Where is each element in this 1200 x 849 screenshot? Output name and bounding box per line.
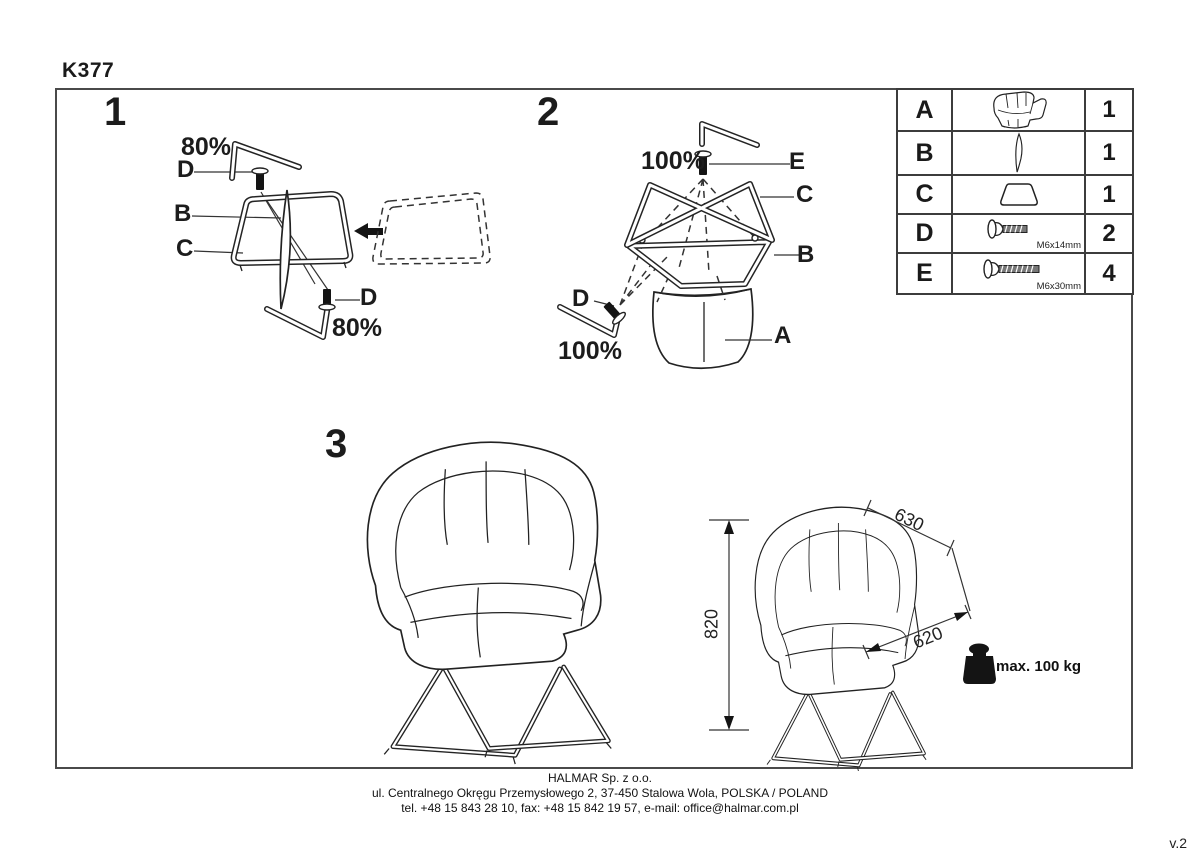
part-qty: 1 <box>1102 181 1115 209</box>
step2-pct-top: 100% <box>641 149 705 174</box>
weight-icon <box>963 644 996 685</box>
version-label: v.2 <box>1149 835 1187 849</box>
step2-label-d: D <box>572 287 589 311</box>
max-load-text: max. 100 kg <box>996 658 1081 675</box>
step2-label-c: C <box>796 183 813 207</box>
dim-height-text: 820 <box>702 609 723 639</box>
step2-label-b: B <box>797 243 814 267</box>
part-row: M6x14mm <box>953 215 1086 254</box>
part-letter: E <box>916 259 933 288</box>
assembly-instruction-sheet: K377 <box>0 0 1200 849</box>
step-1-number: 1 <box>104 92 126 132</box>
step-2-number: 2 <box>537 92 559 132</box>
footer-company: HALMAR Sp. z o.o. <box>0 771 1200 785</box>
frame-icon <box>996 180 1042 210</box>
chair-shell-icon <box>984 90 1054 130</box>
part-letter: D <box>915 219 933 248</box>
part-letter: C <box>915 180 933 209</box>
step1-diagram <box>192 144 490 337</box>
connector-blade-icon <box>1009 132 1029 174</box>
step1-label-d-top: D <box>177 158 194 182</box>
model-title: K377 <box>62 59 114 83</box>
part-qty: 4 <box>1102 260 1115 288</box>
footer-contact: tel. +48 15 843 28 10, fax: +48 15 842 1… <box>0 801 1200 815</box>
step2-label-a: A <box>774 324 791 348</box>
step2-label-e: E <box>789 150 805 174</box>
part-qty: 1 <box>1102 96 1115 124</box>
step1-label-b: B <box>174 202 191 226</box>
part-row <box>953 176 1086 215</box>
footer-address: ul. Centralnego Okręgu Przemysłowego 2, … <box>0 786 1200 800</box>
part-letter: A <box>915 96 933 125</box>
part-qty: 2 <box>1102 220 1115 248</box>
step3-diagram <box>367 442 996 771</box>
part-row <box>953 90 1086 132</box>
part-row <box>953 132 1086 176</box>
parts-table: A 1 B 1 C 1 D <box>896 88 1134 295</box>
part-row: M6x30mm <box>953 254 1086 293</box>
part-qty: 1 <box>1102 139 1115 167</box>
assembled-chair-left <box>367 442 611 764</box>
step1-label-c: C <box>176 237 193 261</box>
assembled-chair-right <box>755 507 926 771</box>
part-letter: B <box>915 139 933 168</box>
step1-pct-bottom: 80% <box>332 316 382 341</box>
step2-pct-bottom: 100% <box>558 339 622 364</box>
step-3-number: 3 <box>325 424 347 464</box>
step1-label-d-bottom: D <box>360 286 377 310</box>
